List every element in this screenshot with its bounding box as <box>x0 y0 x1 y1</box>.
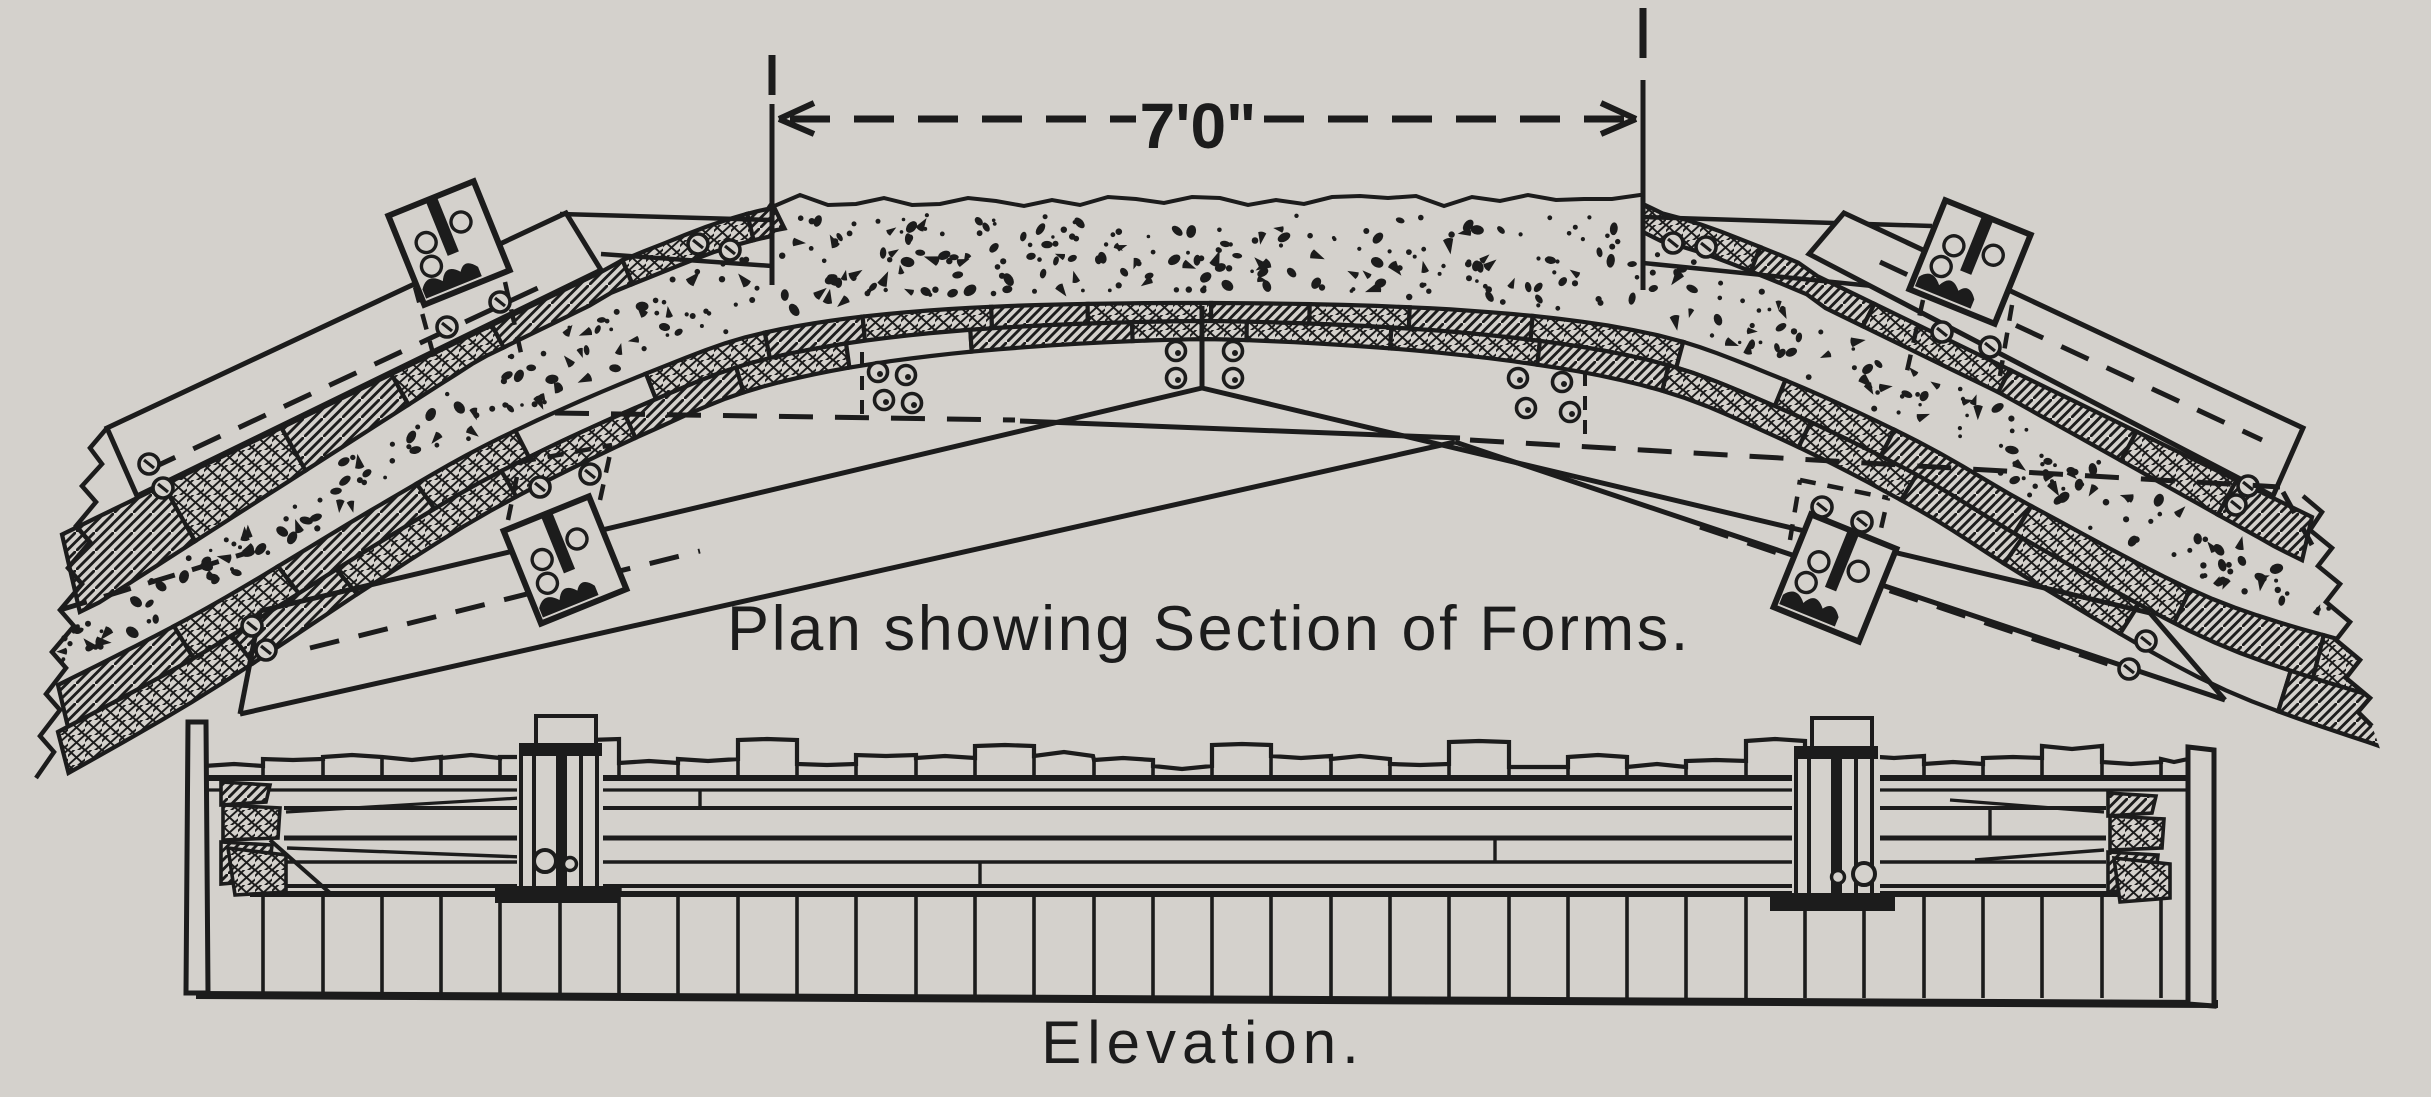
svg-text:Elevation.: Elevation. <box>1041 1009 1365 1076</box>
svg-text:7'0": 7'0" <box>1140 90 1257 162</box>
svg-text:Plan showing Section of Forms.: Plan showing Section of Forms. <box>727 594 1691 664</box>
